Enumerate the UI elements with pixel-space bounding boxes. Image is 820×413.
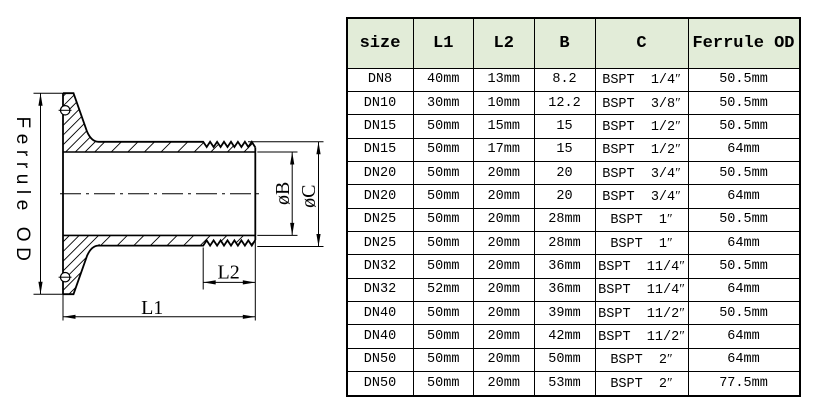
svg-text:øC: øC bbox=[298, 185, 320, 208]
svg-text:L2: L2 bbox=[217, 262, 239, 284]
svg-text:Ferrule OD: Ferrule OD bbox=[12, 117, 33, 267]
svg-text:L1: L1 bbox=[141, 297, 163, 319]
svg-text:øB: øB bbox=[272, 182, 294, 205]
